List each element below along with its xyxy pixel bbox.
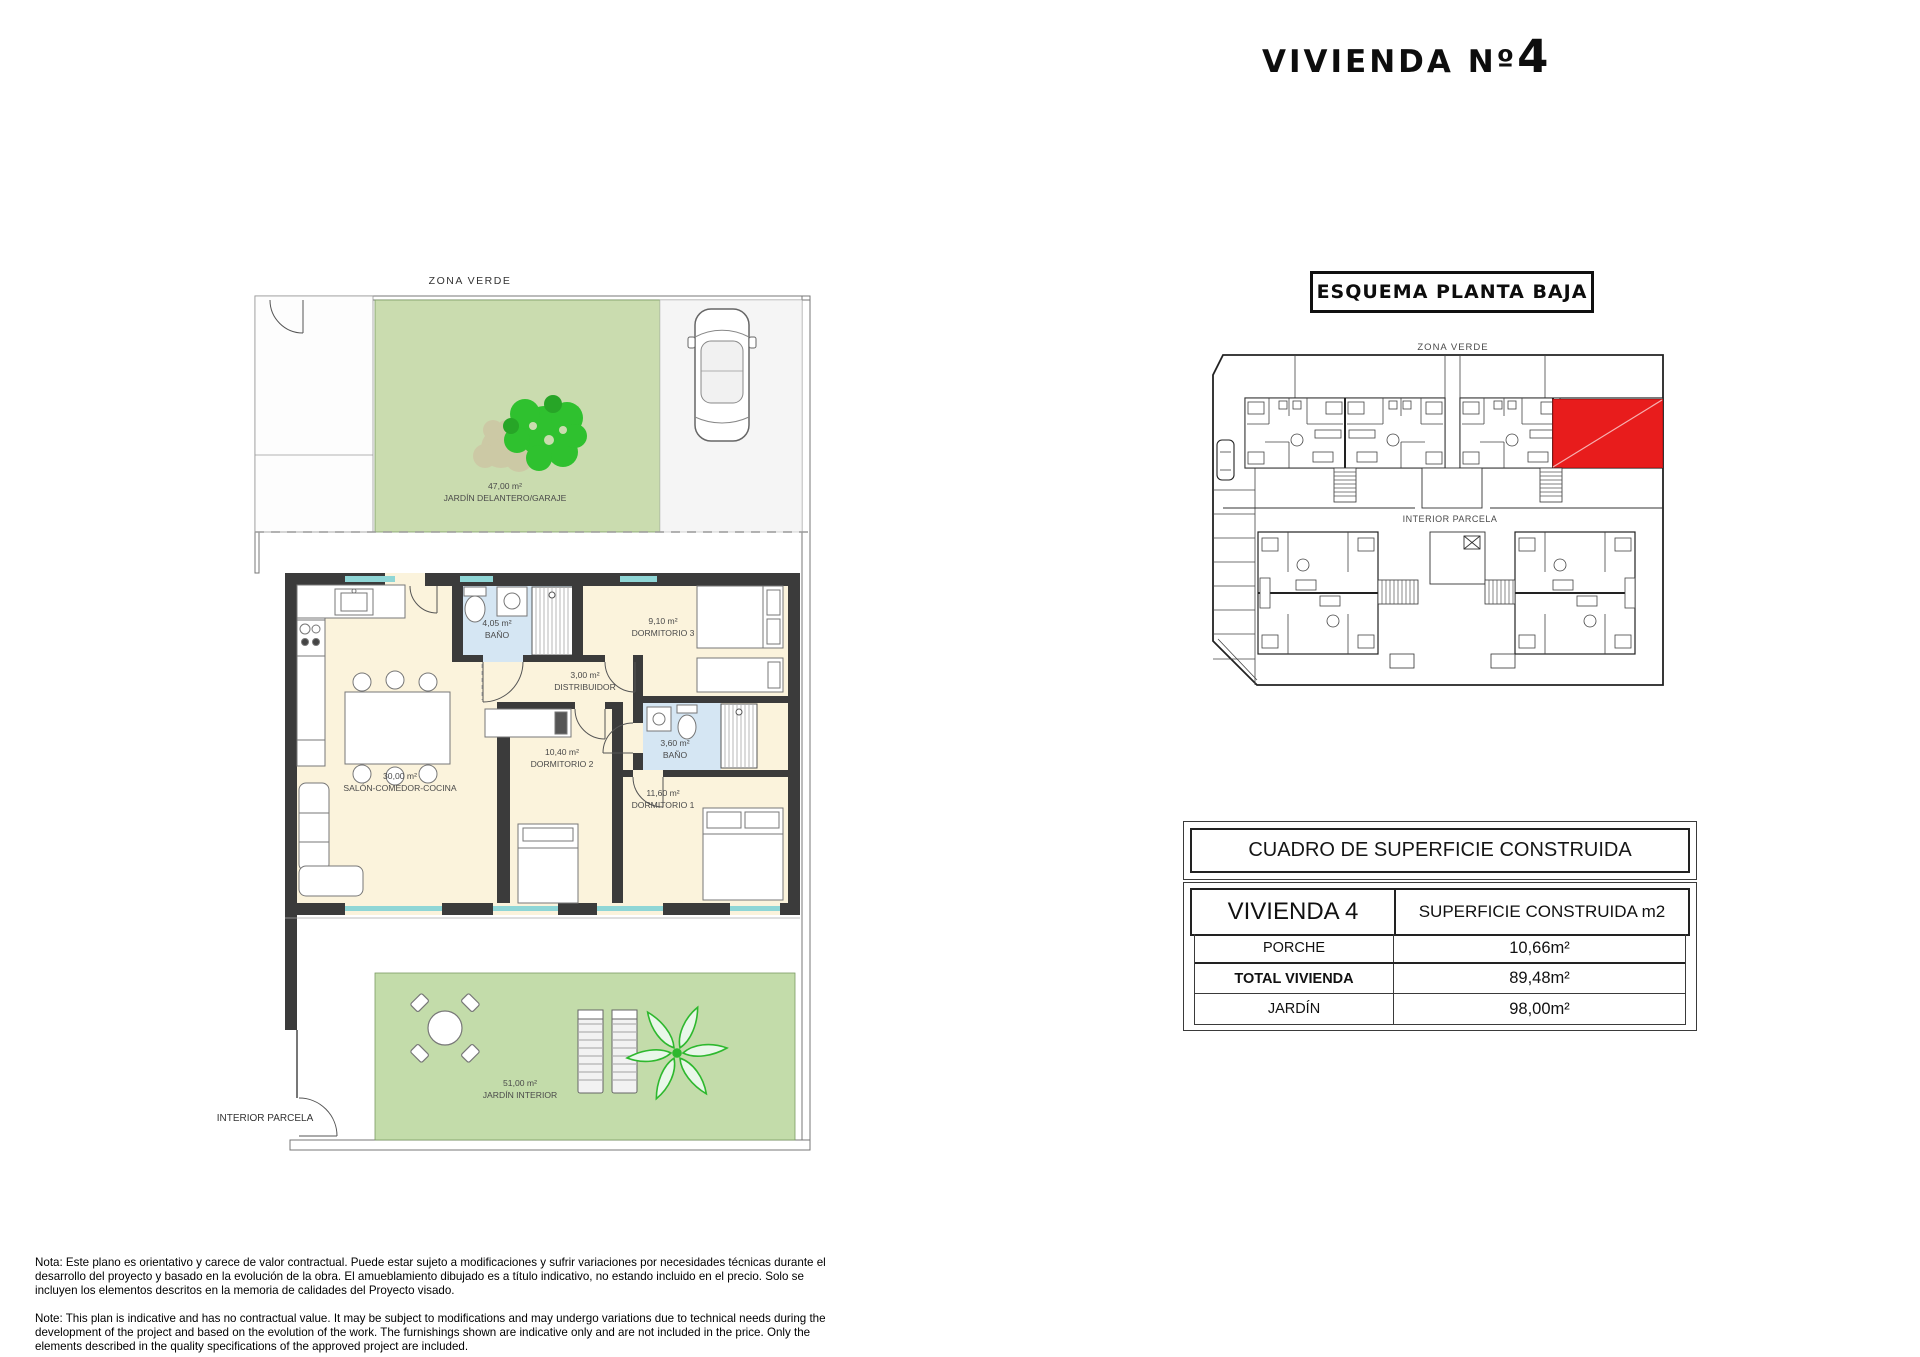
interior-garden-label: JARDÍN INTERIOR bbox=[483, 1090, 557, 1100]
table-row: TOTAL VIVIENDA 89,48m² bbox=[1195, 964, 1685, 994]
zona-verde-label: ZONA VERDE bbox=[429, 275, 512, 287]
row-value: 89,48m² bbox=[1394, 964, 1685, 993]
note-spanish: Nota: Este plano es orientativo y carece… bbox=[35, 1256, 835, 1298]
plan-sheet: VIVIENDA Nº4 ZONA VERDE bbox=[0, 0, 1920, 1357]
bath2-area: 3,60 m² bbox=[660, 738, 689, 748]
schema-zona-verde-label: ZONA VERDE bbox=[1417, 342, 1488, 353]
schematic-lower-block bbox=[1515, 532, 1635, 654]
table-row: JARDÍN 98,00m² bbox=[1195, 994, 1685, 1024]
interior-parcela-label: INTERIOR PARCELA bbox=[217, 1113, 314, 1124]
dorm3-label: DORMITORIO 3 bbox=[632, 628, 695, 638]
surface-table-title: CUADRO DE SUPERFICIE CONSTRUIDA bbox=[1248, 839, 1631, 862]
schematic-lower-block bbox=[1258, 532, 1378, 654]
schematic-unit-highlighted bbox=[1553, 400, 1663, 468]
interior-garden-area-value: 51,00 m² bbox=[503, 1078, 537, 1088]
title-prefix: VIVIENDA Nº bbox=[1262, 44, 1517, 80]
schematic-unit bbox=[1245, 398, 1345, 468]
sun-lounger bbox=[578, 1010, 603, 1093]
shower2 bbox=[721, 704, 757, 768]
dorm2-label: DORMITORIO 2 bbox=[531, 759, 594, 769]
surface-table-col1-header: VIVIENDA 4 bbox=[1192, 890, 1396, 934]
dorm1-area: 11,60 m² bbox=[646, 788, 679, 798]
title-number: 4 bbox=[1517, 30, 1549, 83]
row-label: TOTAL VIVIENDA bbox=[1195, 964, 1394, 993]
distribuidor-label: DISTRIBUIDOR bbox=[554, 682, 616, 692]
dorm3-area: 9,10 m² bbox=[648, 616, 677, 626]
dorm1-label: DORMITORIO 1 bbox=[632, 800, 695, 810]
bath1-label: BAÑO bbox=[485, 630, 510, 640]
bedroom3-furniture bbox=[697, 586, 783, 692]
surface-table-title-box: CUADRO DE SUPERFICIE CONSTRUIDA bbox=[1183, 821, 1697, 880]
front-garden-label: JARDÍN DELANTERO/GARAJE bbox=[444, 493, 567, 503]
page-title: VIVIENDA Nº4 bbox=[1262, 30, 1549, 83]
site-schematic: ZONA VERDE bbox=[1200, 340, 1700, 700]
front-garden-area-value: 47,00 m² bbox=[488, 481, 522, 491]
main-floor-plan: ZONA VERDE bbox=[215, 268, 815, 1168]
row-value: 10,66m² bbox=[1394, 934, 1685, 962]
sun-lounger bbox=[612, 1010, 637, 1093]
shower1 bbox=[532, 587, 573, 655]
schematic-unit bbox=[1345, 398, 1445, 468]
row-label: JARDÍN bbox=[1195, 994, 1394, 1024]
schematic-unit bbox=[1460, 398, 1560, 468]
bath2-label: BAÑO bbox=[663, 750, 688, 760]
row-label: PORCHE bbox=[1195, 934, 1394, 962]
schema-title-box: ESQUEMA PLANTA BAJA bbox=[1310, 271, 1594, 313]
salon-area: 30,00 m² bbox=[383, 771, 417, 781]
schema-car-icon bbox=[1217, 440, 1234, 480]
note-english: Note: This plan is indicative and has no… bbox=[35, 1312, 835, 1354]
legal-notes: Nota: Este plano es orientativo y carece… bbox=[35, 1256, 835, 1357]
car-icon bbox=[688, 309, 756, 441]
salon-label: SALÓN-COMEDOR-COCINA bbox=[343, 783, 456, 793]
table-row: PORCHE 10,66m² bbox=[1195, 934, 1685, 964]
surface-table: CUADRO DE SUPERFICIE CONSTRUIDA VIVIENDA… bbox=[1183, 821, 1697, 1033]
distribuidor-area: 3,00 m² bbox=[570, 670, 599, 680]
surface-table-col2-header: SUPERFICIE CONSTRUIDA m2 bbox=[1396, 890, 1688, 934]
schema-title: ESQUEMA PLANTA BAJA bbox=[1317, 281, 1588, 303]
bedroom1-furniture bbox=[703, 808, 783, 900]
schema-bottom-stub bbox=[1491, 654, 1515, 668]
row-value: 98,00m² bbox=[1394, 994, 1685, 1024]
bath1-area: 4,05 m² bbox=[482, 618, 511, 628]
dorm2-area: 10,40 m² bbox=[545, 747, 579, 757]
schema-interior-parcela-label: INTERIOR PARCELA bbox=[1403, 514, 1498, 524]
entry-corridor bbox=[255, 296, 373, 532]
dining-table bbox=[345, 671, 450, 785]
surface-table-body: VIVIENDA 4 SUPERFICIE CONSTRUIDA m2 PORC… bbox=[1183, 882, 1697, 1031]
schema-bottom-stub bbox=[1390, 654, 1414, 668]
